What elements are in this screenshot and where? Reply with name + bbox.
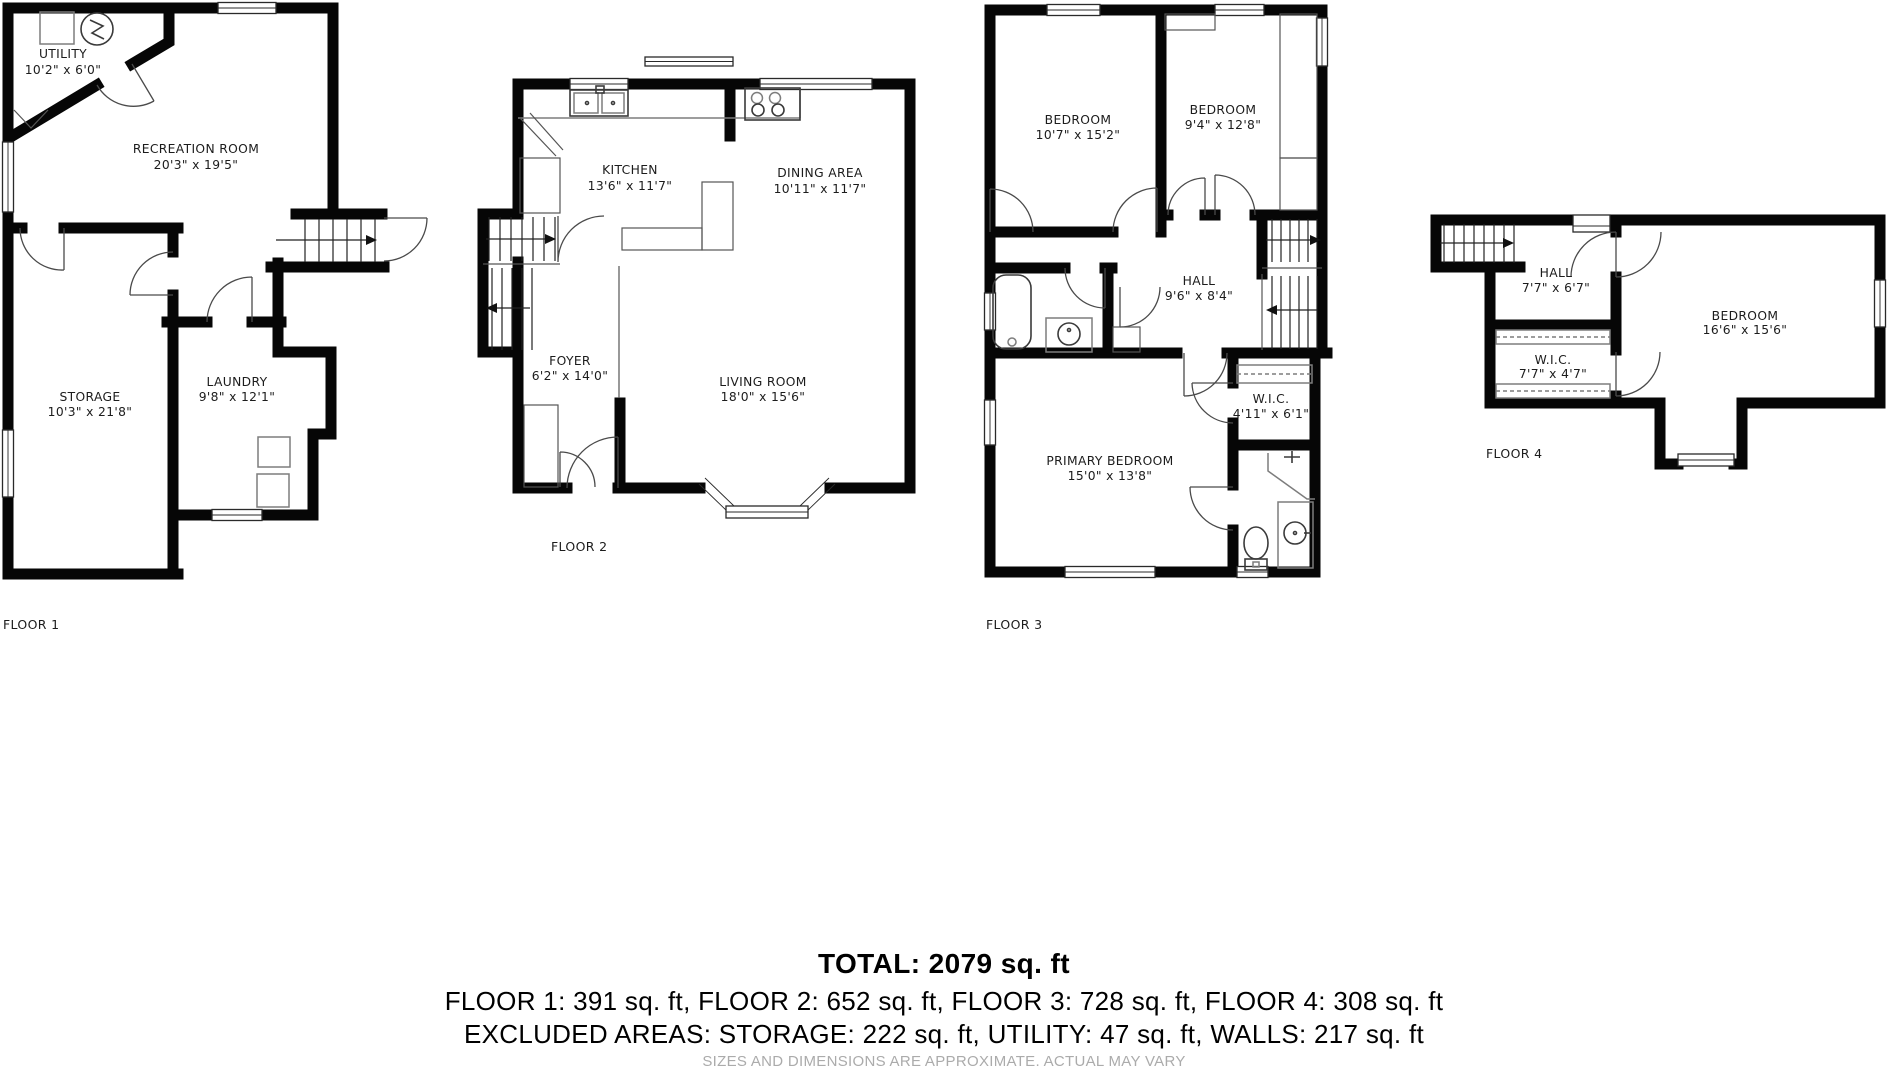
kitchen-sink-icon bbox=[570, 86, 628, 116]
niche bbox=[1573, 215, 1610, 232]
room-label: FOYER bbox=[549, 354, 591, 368]
room-dims: 20'3" x 19'5" bbox=[154, 158, 239, 172]
summary-disclaimer: SIZES AND DIMENSIONS ARE APPROXIMATE, AC… bbox=[0, 1053, 1888, 1066]
summary-total: TOTAL: 2079 sq. ft bbox=[0, 948, 1888, 980]
room-label: HALL bbox=[1183, 274, 1216, 288]
floor-3-plan: BEDROOM 10'7" x 15'2" BEDROOM 9'4" x 12'… bbox=[985, 5, 1328, 633]
wardrobe bbox=[1280, 14, 1317, 158]
floor-2-label: FLOOR 2 bbox=[551, 539, 607, 554]
pantry-closet bbox=[520, 158, 560, 213]
room-label: W.I.C. bbox=[1535, 353, 1572, 367]
faucet-icon bbox=[1284, 451, 1300, 463]
room-label: LIVING ROOM bbox=[719, 375, 807, 389]
walls bbox=[483, 84, 910, 488]
counter-peninsula bbox=[622, 228, 702, 250]
room-label: BEDROOM bbox=[1190, 103, 1257, 117]
summary-floor-areas: FLOOR 1: 391 sq. ft, FLOOR 2: 652 sq. ft… bbox=[0, 986, 1888, 1017]
room-label: KITCHEN bbox=[602, 163, 658, 177]
room-dims: 9'6" x 8'4" bbox=[1165, 289, 1233, 303]
walls bbox=[1436, 220, 1880, 464]
room-label: BEDROOM bbox=[1045, 113, 1112, 127]
floor-2-plan: KITCHEN 13'6" x 11'7" DINING AREA 10'11"… bbox=[483, 57, 910, 554]
room-dims: 4'11" x 6'1" bbox=[1233, 407, 1310, 421]
water-heater-icon bbox=[40, 12, 74, 44]
room-dims: 10'11" x 11'7" bbox=[774, 182, 867, 196]
doors bbox=[558, 216, 618, 488]
room-label: HALL bbox=[1540, 266, 1573, 280]
niche bbox=[1165, 14, 1215, 30]
floorplan-page: UTILITY 10'2" x 6'0" RECREATION ROOM 20'… bbox=[0, 0, 1888, 1066]
room-dims: 7'7" x 6'7" bbox=[1522, 281, 1590, 295]
room-label: UTILITY bbox=[39, 47, 87, 61]
room-dims: 7'7" x 4'7" bbox=[1519, 367, 1587, 381]
summary-excluded-areas: EXCLUDED AREAS: STORAGE: 222 sq. ft, UTI… bbox=[0, 1019, 1888, 1050]
room-label: PRIMARY BEDROOM bbox=[1046, 454, 1173, 468]
stove-icon bbox=[745, 88, 800, 120]
room-label: BEDROOM bbox=[1712, 309, 1779, 323]
closet-rod-icon bbox=[1237, 365, 1312, 383]
room-dims: 10'3" x 21'8" bbox=[48, 405, 133, 419]
washer-icon bbox=[258, 437, 290, 467]
entry-closet bbox=[524, 405, 558, 487]
room-dims: 6'2" x 14'0" bbox=[532, 369, 609, 383]
fixtures bbox=[40, 12, 290, 507]
room-dims: 18'0" x 15'6" bbox=[721, 390, 806, 404]
room-dims: 16'6" x 15'6" bbox=[1703, 323, 1788, 337]
room-label: DINING AREA bbox=[777, 166, 863, 180]
room-dims: 13'6" x 11'7" bbox=[588, 179, 673, 193]
walls bbox=[8, 8, 384, 574]
windows bbox=[3, 3, 277, 521]
room-label: W.I.C. bbox=[1253, 392, 1290, 406]
floor-3-label: FLOOR 3 bbox=[986, 617, 1042, 632]
vanity-sink-icon bbox=[1278, 502, 1313, 568]
dryer-icon bbox=[257, 474, 289, 507]
room-dims: 10'2" x 6'0" bbox=[25, 63, 102, 77]
room-dims: 9'8" x 12'1" bbox=[199, 390, 276, 404]
room-label: STORAGE bbox=[60, 390, 121, 404]
wardrobe bbox=[1280, 158, 1317, 210]
counter-peninsula bbox=[702, 182, 733, 250]
stairs-icon bbox=[1440, 224, 1514, 263]
floor-1-plan: UTILITY 10'2" x 6'0" RECREATION ROOM 20'… bbox=[3, 3, 428, 633]
room-dims: 10'7" x 15'2" bbox=[1036, 128, 1121, 142]
stairs-icon bbox=[276, 219, 377, 262]
fixtures bbox=[518, 86, 800, 487]
floor-1-label: FLOOR 1 bbox=[3, 617, 59, 632]
stairs-icon bbox=[483, 217, 560, 350]
toilet-icon bbox=[1244, 527, 1268, 570]
floor-4-plan: HALL 7'7" x 6'7" W.I.C. 7'7" x 4'7" BEDR… bbox=[1436, 215, 1886, 466]
bay-window-icon bbox=[699, 478, 835, 518]
stairs-icon bbox=[1262, 219, 1322, 350]
room-dims: 15'0" x 13'8" bbox=[1068, 469, 1153, 483]
fixtures bbox=[993, 14, 1317, 570]
floor-4-label: FLOOR 4 bbox=[1486, 446, 1542, 461]
room-dims: 9'4" x 12'8" bbox=[1185, 118, 1262, 132]
floorplan-canvas: UTILITY 10'2" x 6'0" RECREATION ROOM 20'… bbox=[0, 0, 1888, 680]
chimney bbox=[520, 113, 563, 156]
room-label: LAUNDRY bbox=[207, 375, 268, 389]
walls bbox=[990, 10, 1327, 572]
doors bbox=[20, 64, 427, 322]
room-label: RECREATION ROOM bbox=[133, 142, 259, 156]
sink-icon bbox=[1046, 318, 1092, 352]
